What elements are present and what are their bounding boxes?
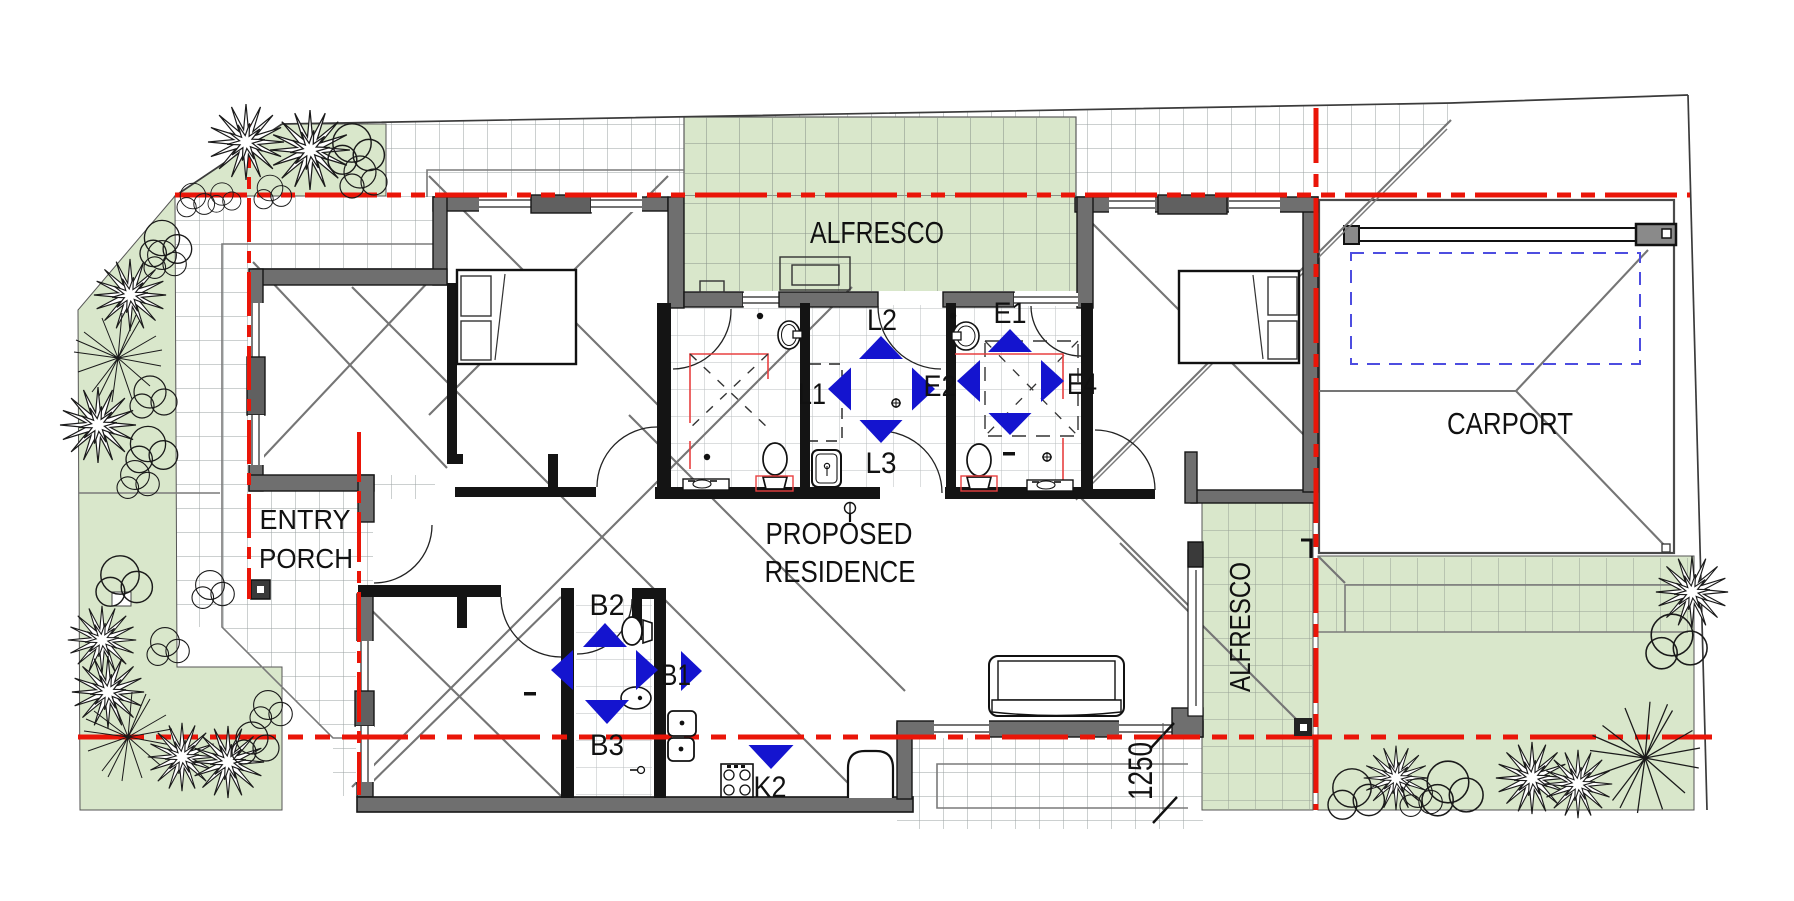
svg-text:RESIDENCE: RESIDENCE [765, 554, 916, 589]
svg-text:CARPORT: CARPORT [1447, 406, 1573, 441]
svg-text:L2: L2 [867, 304, 897, 337]
svg-text:PORCH: PORCH [259, 543, 353, 574]
svg-text:L1: L1 [798, 378, 826, 411]
svg-text:ALFRESCO: ALFRESCO [1225, 562, 1257, 692]
svg-text:B1: B1 [661, 659, 691, 692]
svg-text:ALFRESCO: ALFRESCO [810, 215, 944, 250]
svg-text:ENTRY: ENTRY [260, 504, 351, 535]
svg-text:E2: E2 [924, 370, 957, 403]
svg-text:E1: E1 [994, 297, 1027, 330]
svg-text:E4: E4 [1067, 368, 1097, 401]
svg-text:K2: K2 [754, 771, 787, 804]
svg-text:B2: B2 [590, 589, 625, 622]
svg-text:B3: B3 [590, 729, 624, 762]
svg-text:L3: L3 [866, 447, 897, 480]
svg-text:1250: 1250 [1122, 742, 1160, 800]
svg-text:PROPOSED: PROPOSED [766, 516, 913, 551]
